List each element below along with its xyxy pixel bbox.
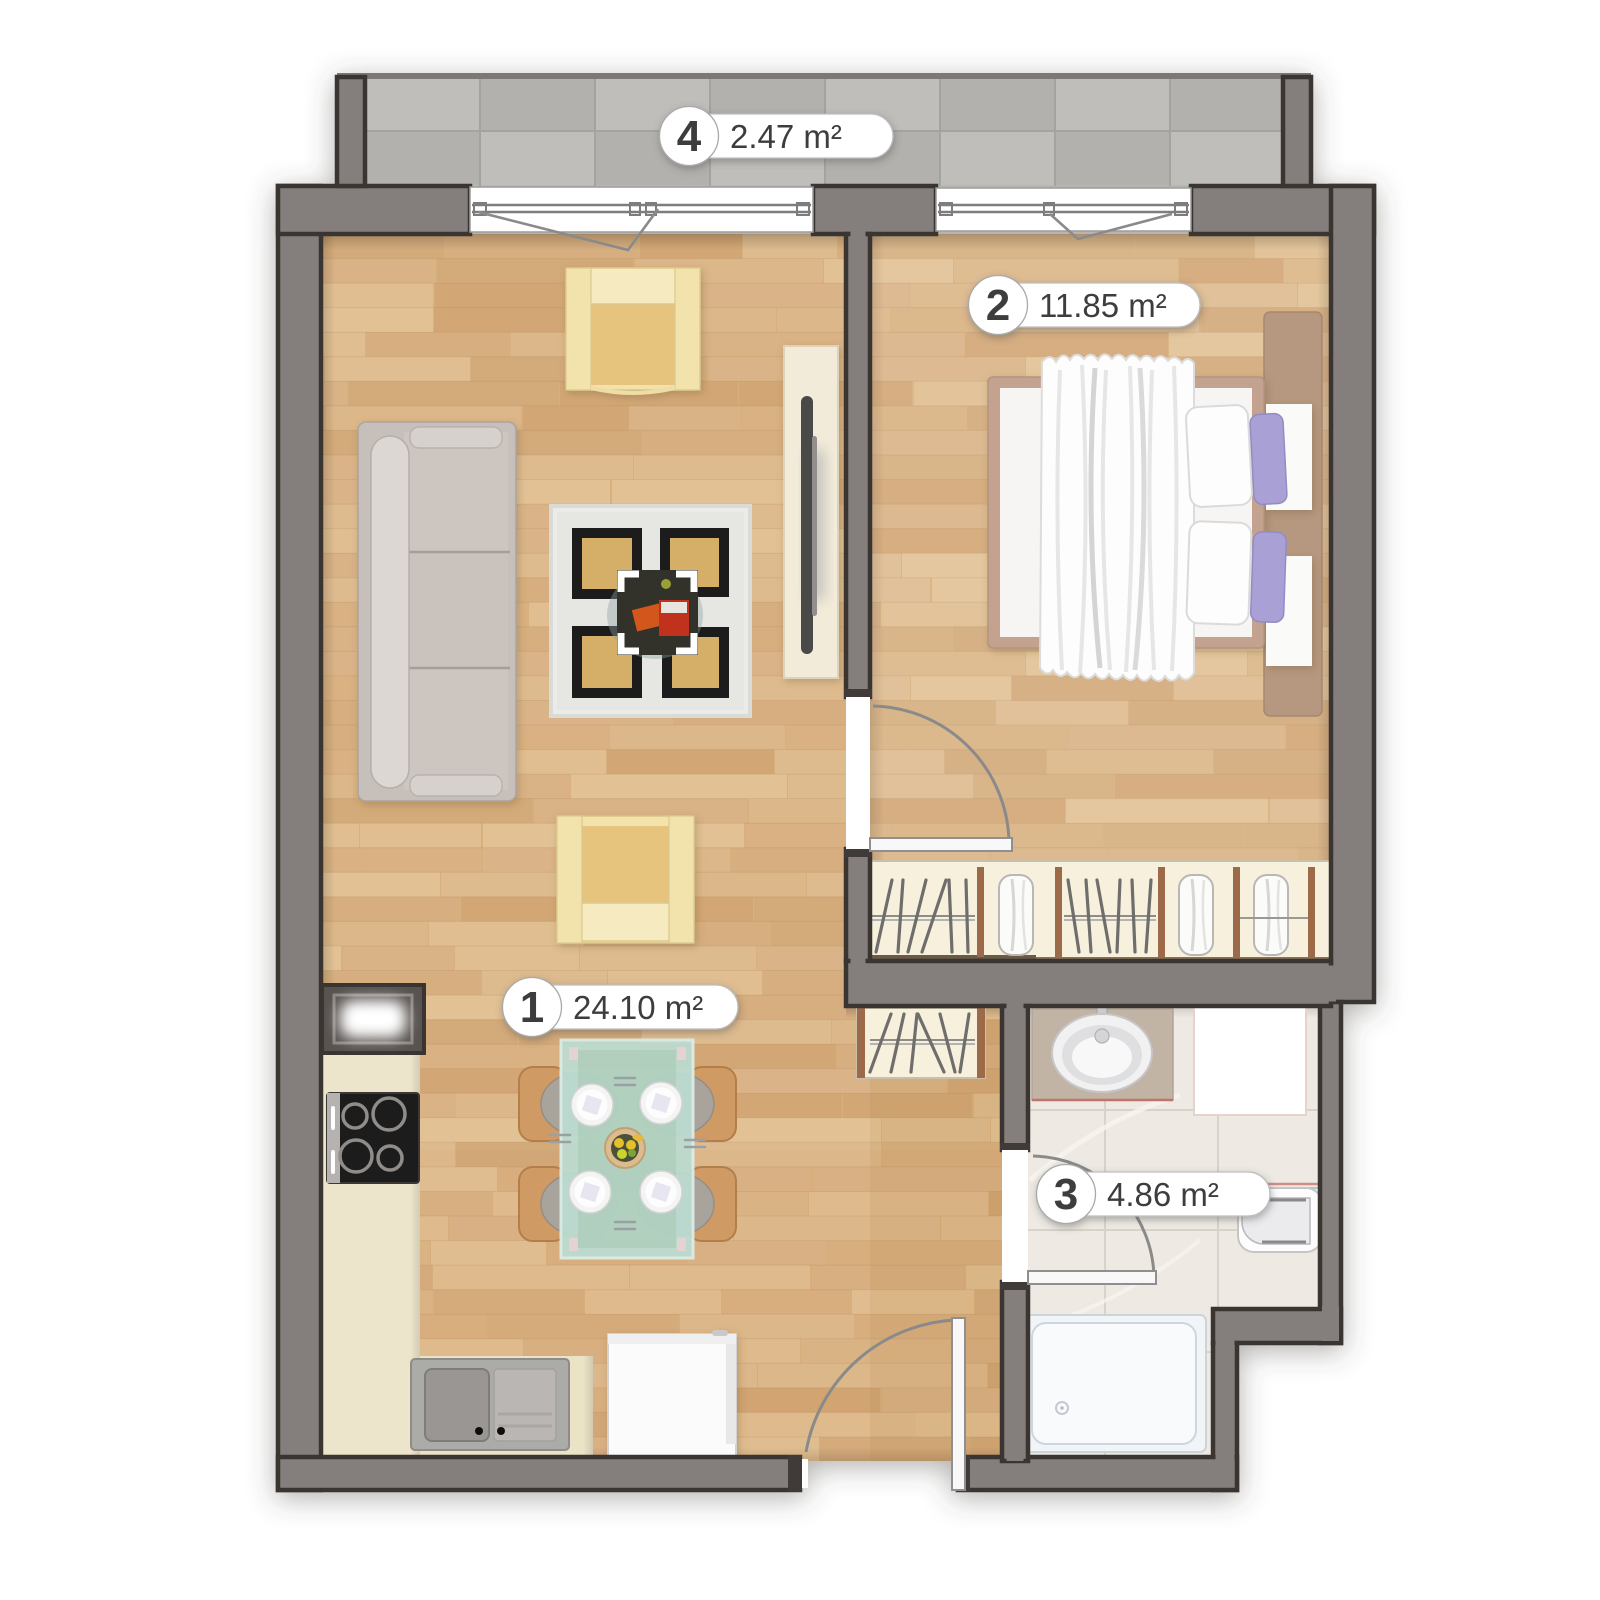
svg-text:4.86 m²: 4.86 m² — [1107, 1176, 1219, 1213]
svg-text:2.47 m²: 2.47 m² — [730, 118, 842, 155]
svg-text:3: 3 — [1054, 1170, 1078, 1219]
svg-text:11.85 m²: 11.85 m² — [1039, 287, 1167, 324]
svg-text:24.10 m²: 24.10 m² — [573, 989, 703, 1026]
svg-text:2: 2 — [986, 281, 1010, 330]
svg-text:4: 4 — [677, 112, 702, 161]
svg-text:1: 1 — [520, 983, 544, 1032]
